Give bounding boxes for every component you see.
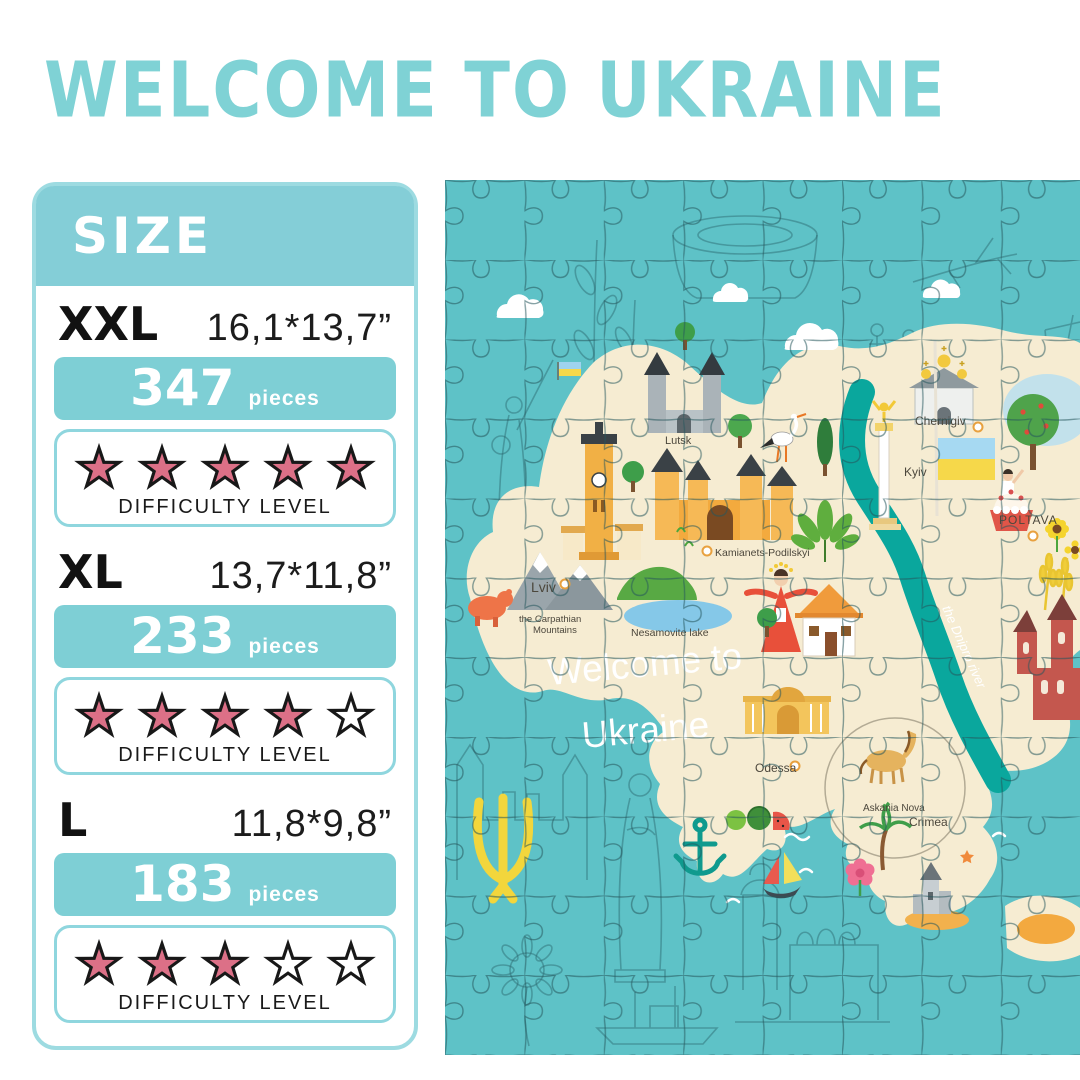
size-label: XL	[58, 547, 123, 598]
difficulty-stars	[57, 440, 393, 494]
star-filled-icon	[135, 936, 189, 990]
size-panel-title: SIZE	[72, 207, 213, 265]
product-infographic: WELCOME TO UKRAINE SIZE XXL 16,1*13,7” 3…	[0, 0, 1080, 1080]
difficulty-stars	[57, 688, 393, 742]
pieces-badge: 183 pieces	[54, 853, 396, 916]
pieces-badge: 233 pieces	[54, 605, 396, 668]
star-filled-icon	[72, 936, 126, 990]
size-row: XL 13,7*11,8”	[54, 547, 396, 598]
star-filled-icon	[324, 440, 378, 494]
star-filled-icon	[198, 688, 252, 742]
difficulty-caption: DIFFICULTY LEVEL	[57, 992, 393, 1015]
puzzle-image: the Dnipro river	[445, 180, 1080, 1055]
size-panel: SIZE XXL 16,1*13,7” 347 pieces DIFFICULT…	[32, 182, 418, 1050]
pieces-badge: 347 pieces	[54, 357, 396, 420]
star-filled-icon	[135, 688, 189, 742]
star-filled-icon	[198, 936, 252, 990]
difficulty-caption: DIFFICULTY LEVEL	[57, 744, 393, 767]
size-label: L	[58, 795, 87, 846]
difficulty-box: DIFFICULTY LEVEL	[54, 677, 396, 775]
puzzle-cut-pattern	[445, 180, 1080, 1055]
size-dimensions: 11,8*9,8”	[232, 803, 392, 846]
difficulty-box: DIFFICULTY LEVEL	[54, 429, 396, 527]
size-panel-header: SIZE	[36, 186, 414, 286]
star-filled-icon	[261, 688, 315, 742]
difficulty-box: DIFFICULTY LEVEL	[54, 925, 396, 1023]
size-dimensions: 16,1*13,7”	[207, 307, 392, 350]
size-dimensions: 13,7*11,8”	[209, 555, 392, 598]
size-row: L 11,8*9,8”	[54, 795, 396, 846]
star-filled-icon	[198, 440, 252, 494]
star-empty-icon	[324, 936, 378, 990]
page-title: WELCOME TO UKRAINE	[44, 46, 947, 135]
size-label: XXL	[58, 299, 158, 350]
star-filled-icon	[261, 440, 315, 494]
size-block-l: L 11,8*9,8” 183 pieces DIFFICULTY LEVEL	[54, 795, 396, 1023]
pieces-count: 233	[130, 611, 234, 661]
pieces-word: pieces	[248, 636, 319, 661]
size-block-xl: XL 13,7*11,8” 233 pieces DIFFICULTY LEVE…	[54, 547, 396, 775]
star-empty-icon	[324, 688, 378, 742]
size-block-xxl: XXL 16,1*13,7” 347 pieces DIFFICULTY LEV…	[54, 299, 396, 527]
star-filled-icon	[72, 688, 126, 742]
star-empty-icon	[261, 936, 315, 990]
difficulty-caption: DIFFICULTY LEVEL	[57, 496, 393, 519]
size-row: XXL 16,1*13,7”	[54, 299, 396, 350]
star-filled-icon	[72, 440, 126, 494]
difficulty-stars	[57, 936, 393, 990]
pieces-word: pieces	[248, 884, 319, 909]
pieces-word: pieces	[248, 388, 319, 413]
pieces-count: 347	[130, 363, 234, 413]
pieces-count: 183	[130, 859, 234, 909]
star-filled-icon	[135, 440, 189, 494]
